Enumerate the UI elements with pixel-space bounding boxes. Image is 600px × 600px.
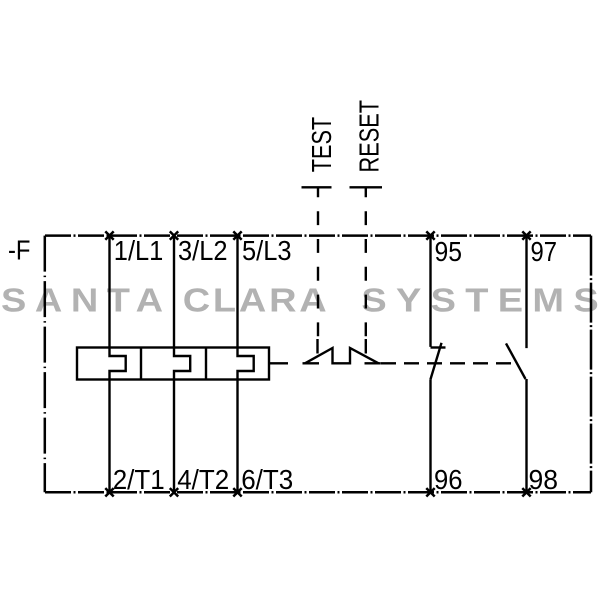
- svg-text:6/T3: 6/T3: [241, 464, 293, 495]
- svg-text:SANTA: SANTA: [1, 282, 163, 319]
- svg-text:2/T1: 2/T1: [113, 464, 165, 495]
- svg-text:CLARA: CLARA: [183, 282, 327, 319]
- svg-text:1/L1: 1/L1: [114, 235, 164, 266]
- svg-text:98: 98: [529, 464, 559, 495]
- svg-text:-F: -F: [8, 235, 31, 266]
- svg-text:4/T2: 4/T2: [177, 464, 229, 495]
- svg-text:97: 97: [531, 236, 558, 267]
- svg-text:RESET: RESET: [354, 100, 385, 173]
- svg-text:96: 96: [434, 464, 463, 495]
- svg-text:3/L2: 3/L2: [178, 235, 228, 266]
- svg-text:SYSTEMS: SYSTEMS: [361, 282, 598, 319]
- svg-text:95: 95: [435, 236, 463, 267]
- svg-text:5/L3: 5/L3: [242, 235, 292, 266]
- svg-text:TEST: TEST: [306, 117, 337, 173]
